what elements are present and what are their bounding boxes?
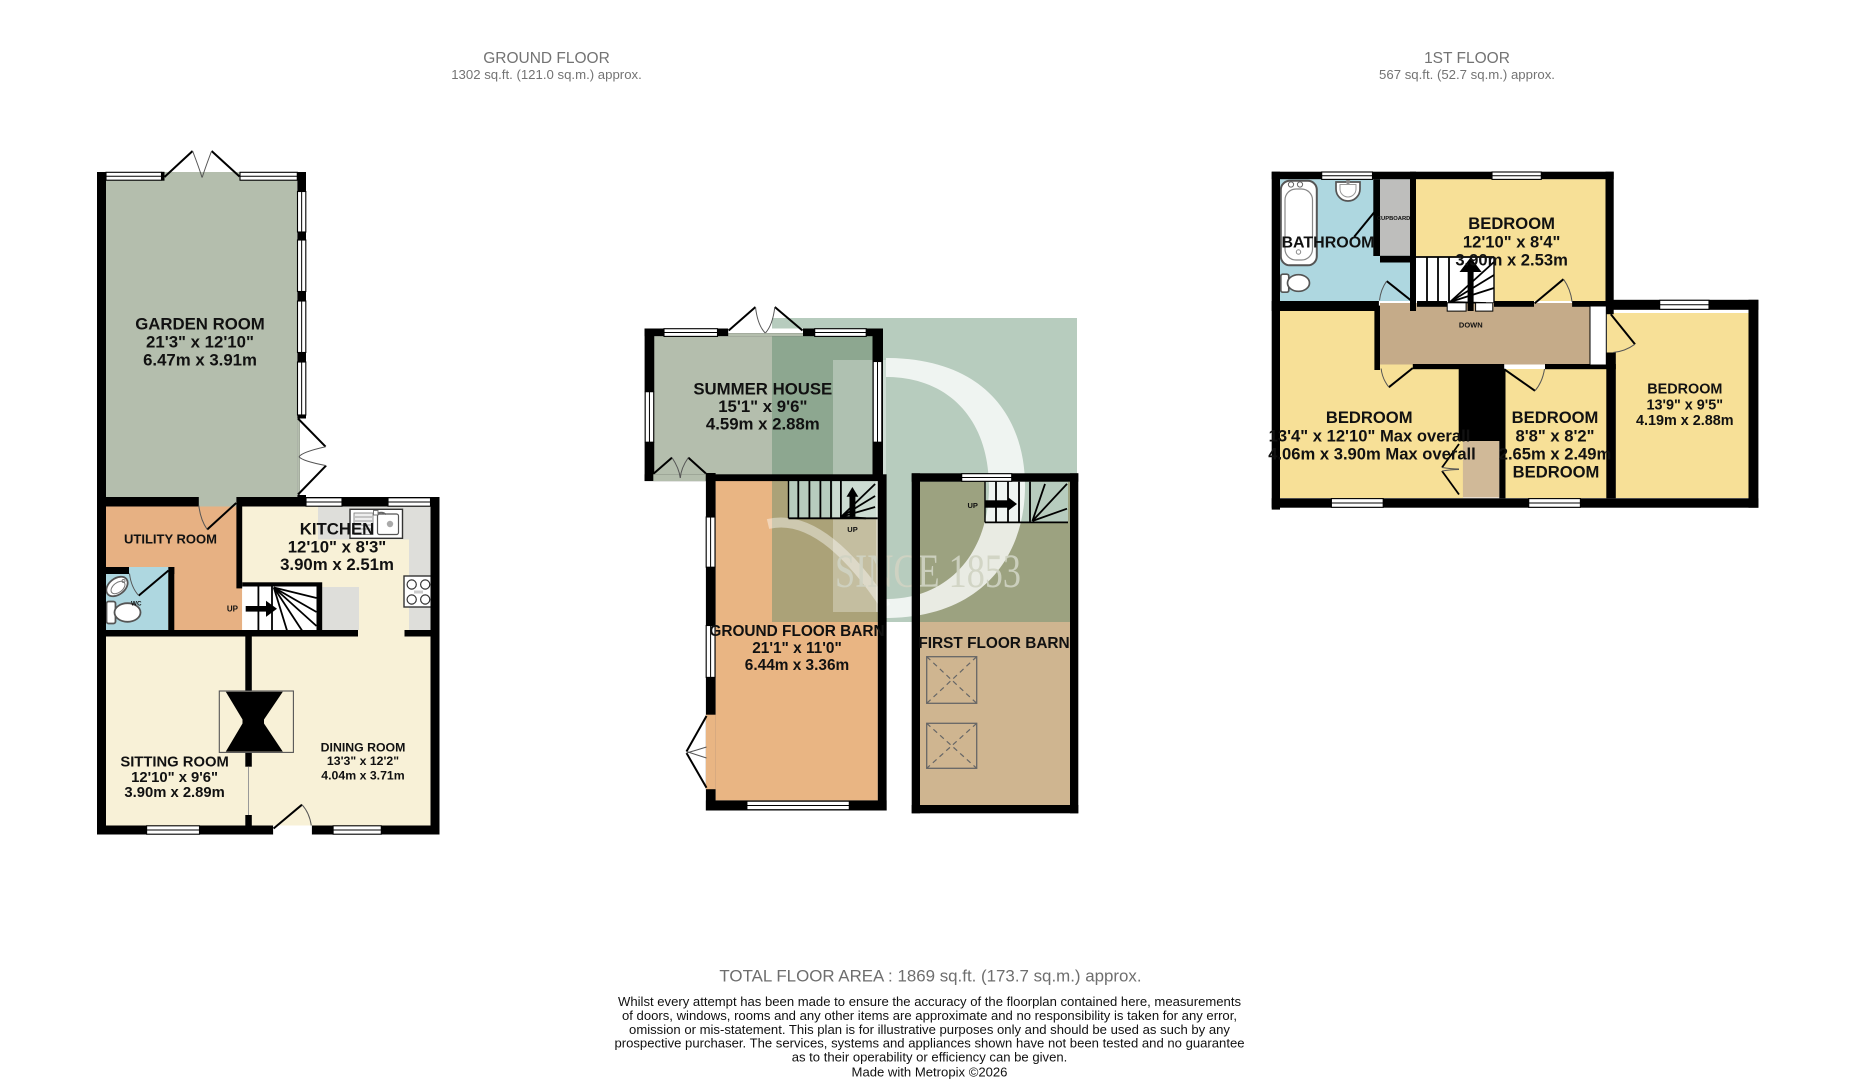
svg-text:8'8" x 8'2": 8'8" x 8'2" <box>1516 426 1595 445</box>
svg-text:KITCHEN: KITCHEN <box>300 519 375 538</box>
svg-text:UTILITY ROOM: UTILITY ROOM <box>124 532 217 547</box>
svg-text:13'3" x 12'2": 13'3" x 12'2" <box>327 754 399 768</box>
svg-text:of doors, windows, rooms and a: of doors, windows, rooms and any other i… <box>622 1008 1237 1023</box>
svg-text:12'10" x 8'3": 12'10" x 8'3" <box>288 537 387 556</box>
svg-text:SINCE 1853: SINCE 1853 <box>835 545 1021 598</box>
svg-text:21'1" x 11'0": 21'1" x 11'0" <box>752 640 842 657</box>
svg-text:4.19m x 2.88m: 4.19m x 2.88m <box>1636 413 1734 429</box>
svg-text:UP: UP <box>227 604 239 613</box>
svg-text:SUMMER HOUSE: SUMMER HOUSE <box>693 380 832 399</box>
svg-text:GROUND FLOOR BARN: GROUND FLOOR BARN <box>709 623 884 640</box>
svg-text:BEDROOM: BEDROOM <box>1647 382 1722 398</box>
svg-text:CUPBOARD: CUPBOARD <box>1377 216 1411 222</box>
svg-text:BEDROOM: BEDROOM <box>1512 408 1599 427</box>
svg-text:DINING ROOM: DINING ROOM <box>321 741 406 755</box>
svg-text:15'1" x 9'6": 15'1" x 9'6" <box>718 397 807 416</box>
svg-text:4.04m x 3.71m: 4.04m x 3.71m <box>321 768 404 782</box>
svg-text:2.65m x 2.49m: 2.65m x 2.49m <box>1499 445 1612 464</box>
svg-text:21'3" x 12'10": 21'3" x 12'10" <box>146 333 254 352</box>
svg-text:3.90m x 2.51m: 3.90m x 2.51m <box>280 555 394 574</box>
svg-text:Whilst every attempt has been: Whilst every attempt has been made to en… <box>618 994 1241 1009</box>
svg-text:GARDEN ROOM: GARDEN ROOM <box>135 315 265 334</box>
svg-text:13'9" x 9'5": 13'9" x 9'5" <box>1647 397 1724 413</box>
svg-text:prospective purchaser. The ser: prospective purchaser. The services, sys… <box>614 1036 1244 1051</box>
svg-text:13'4" x 12'10" Max overall: 13'4" x 12'10" Max overall <box>1269 426 1471 445</box>
svg-text:omission or mis-statement. Thi: omission or mis-statement. This plan is … <box>629 1022 1230 1037</box>
svg-text:BEDROOM: BEDROOM <box>1326 408 1413 427</box>
svg-text:1302 sq.ft. (121.0 sq.m.) appr: 1302 sq.ft. (121.0 sq.m.) approx. <box>451 67 642 82</box>
svg-text:SITTING ROOM: SITTING ROOM <box>120 755 229 771</box>
svg-text:12'10" x 8'4": 12'10" x 8'4" <box>1463 232 1560 251</box>
svg-text:TOTAL FLOOR AREA : 1869 sq.ft.: TOTAL FLOOR AREA : 1869 sq.ft. (173.7 sq… <box>719 967 1141 986</box>
svg-text:567 sq.ft. (52.7 sq.m.) approx: 567 sq.ft. (52.7 sq.m.) approx. <box>1379 67 1555 82</box>
svg-text:GROUND FLOOR: GROUND FLOOR <box>483 50 610 67</box>
svg-text:4.06m x 3.90m Max overall: 4.06m x 3.90m Max overall <box>1268 445 1476 464</box>
svg-text:6.47m x 3.91m: 6.47m x 3.91m <box>143 351 257 370</box>
svg-text:1ST FLOOR: 1ST FLOOR <box>1424 50 1510 67</box>
svg-text:Made with Metropix ©2026: Made with Metropix ©2026 <box>852 1065 1008 1080</box>
svg-text:FIRST FLOOR BARN: FIRST FLOOR BARN <box>918 635 1069 652</box>
svg-text:BEDROOM: BEDROOM <box>1468 214 1555 233</box>
svg-text:3.90m x 2.53m: 3.90m x 2.53m <box>1455 251 1568 270</box>
svg-text:12'10" x 9'6": 12'10" x 9'6" <box>131 770 218 786</box>
svg-text:UP: UP <box>967 501 977 510</box>
svg-text:as to their operability or eff: as to their operability or efficiency ca… <box>792 1050 1068 1065</box>
svg-text:DOWN: DOWN <box>1459 321 1483 330</box>
svg-text:WC: WC <box>131 600 142 607</box>
svg-text:BEDROOM: BEDROOM <box>1513 462 1600 481</box>
svg-text:BATHROOM: BATHROOM <box>1281 235 1374 252</box>
svg-text:UP: UP <box>847 525 857 534</box>
svg-text:4.59m x 2.88m: 4.59m x 2.88m <box>706 415 820 434</box>
svg-text:3.90m x 2.89m: 3.90m x 2.89m <box>124 785 224 801</box>
svg-text:6.44m x 3.36m: 6.44m x 3.36m <box>745 657 849 674</box>
